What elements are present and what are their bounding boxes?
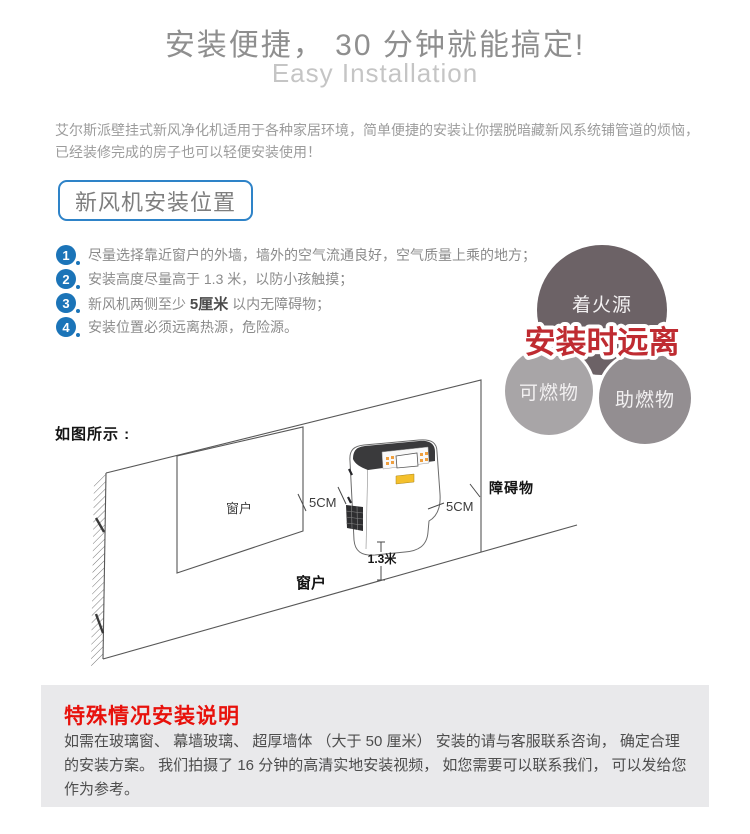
step-text: 尽量选择靠近窗户的外墙，墙外的空气流通良好，空气质量上乘的地方； xyxy=(88,245,536,265)
intro-paragraph: 艾尔斯派壁挂式新风净化机适用于各种家居环境，简单便捷的安装让你摆脱暗藏新风系统铺… xyxy=(55,119,715,163)
special-note-heading: 特殊情况安装说明 xyxy=(64,700,240,730)
step-text: 新风机两侧至少 5厘米 以内无障碍物； xyxy=(88,293,330,314)
purifier-unit-drawing xyxy=(346,440,440,555)
hazard-bubble-label: 助燃物 xyxy=(615,385,675,412)
wall-outline xyxy=(91,380,577,666)
special-note-panel: 特殊情况安装说明 如需在玻璃窗、 幕墙玻璃、 超厚墙体 （大于 50 厘米） 安… xyxy=(41,685,709,807)
page-subtitle: Easy Installation xyxy=(0,58,750,89)
bottom-window-label: 窗户 xyxy=(296,574,326,592)
hazard-bubble-label: 可燃物 xyxy=(519,378,579,405)
special-note-body: 如需在玻璃窗、 幕墙玻璃、 超厚墙体 （大于 50 厘米） 安装的请与客服联系咨… xyxy=(64,730,690,802)
step-number-badge: 2 xyxy=(56,269,76,289)
left-gap-label: 5CM xyxy=(309,495,336,510)
dimension-left-5cm: 5CM xyxy=(298,487,346,511)
keep-away-warning-text: 安装时远离 xyxy=(500,317,705,365)
svg-text:安装时远离: 安装时远离 xyxy=(525,325,680,360)
window-label: 窗户 xyxy=(226,501,252,516)
height-label: 1.3米 xyxy=(368,551,398,566)
unit-logo-badge xyxy=(396,474,414,484)
window-frame: 窗户 xyxy=(177,427,303,573)
step-text: 安装高度尽量高于 1.3 米，以防小孩触摸； xyxy=(88,269,353,289)
step-text: 安装位置必须远离热源，危险源。 xyxy=(88,317,298,337)
step-item-2: 2 安装高度尽量高于 1.3 米，以防小孩触摸； xyxy=(56,269,536,289)
section-badge-install-position: 新风机安装位置 xyxy=(58,180,253,221)
step-item-3: 3 新风机两侧至少 5厘米 以内无障碍物； xyxy=(56,293,536,313)
obstacle-label: 障碍物 xyxy=(489,480,534,496)
section-badge-label: 新风机安装位置 xyxy=(75,185,236,217)
step-item-1: 1 尽量选择靠近窗户的外墙，墙外的空气流通良好，空气质量上乘的地方； xyxy=(56,245,536,265)
step-number-badge: 3 xyxy=(56,293,76,313)
step-number-badge: 1 xyxy=(56,245,76,265)
hazard-bubble-label: 着火源 xyxy=(572,290,632,317)
right-gap-label: 5CM xyxy=(446,499,473,514)
step-number-badge: 4 xyxy=(56,317,76,337)
product-install-page: 安装便捷， 30 分钟就能搞定! Easy Installation 艾尔斯派壁… xyxy=(0,0,750,834)
unit-display xyxy=(396,453,418,468)
intro-line-2: 已经装修完成的房子也可以轻便安装使用！ xyxy=(55,141,715,163)
intro-line-1: 艾尔斯派壁挂式新风净化机适用于各种家居环境，简单便捷的安装让你摆脱暗藏新风系统铺… xyxy=(55,119,715,141)
step-item-4: 4 安装位置必须远离热源，危险源。 xyxy=(56,317,536,337)
unit-vent-grille xyxy=(346,505,363,531)
install-steps-list: 1 尽量选择靠近窗户的外墙，墙外的空气流通良好，空气质量上乘的地方； 2 安装高… xyxy=(56,245,536,341)
